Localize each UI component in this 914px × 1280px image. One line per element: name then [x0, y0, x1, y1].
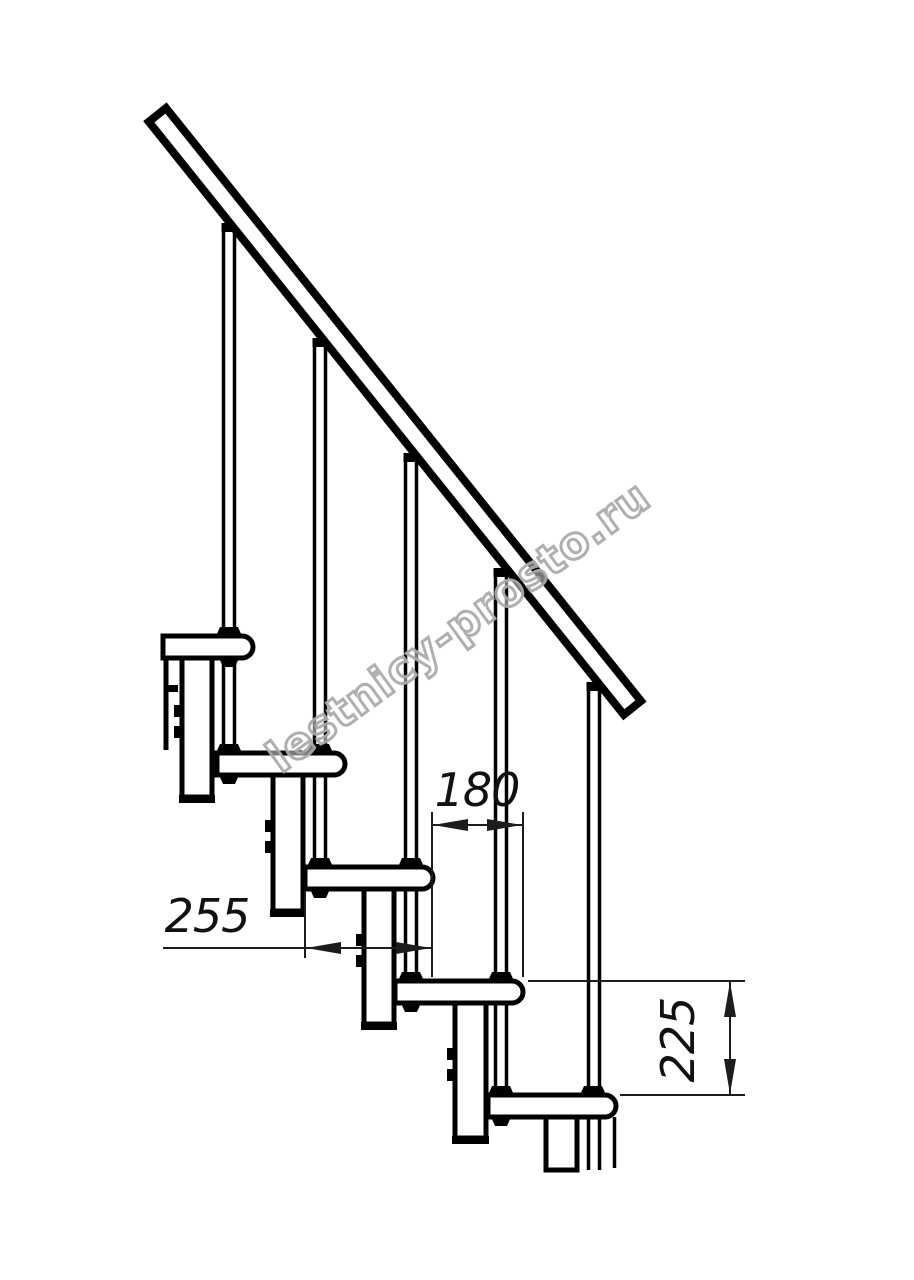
collar-tread5-b4	[488, 1086, 514, 1095]
dim255-arrow-left	[306, 942, 341, 954]
nut-tread5-b4	[491, 1117, 511, 1126]
column-3-bottom-cap	[361, 1022, 397, 1030]
dim255-arrow-right	[396, 942, 431, 954]
column-2-bolt-lower	[265, 841, 273, 853]
column-3-bolt-lower	[356, 955, 364, 967]
column-4-bolt-upper	[447, 1048, 455, 1060]
column-5	[546, 1117, 577, 1170]
tread-1	[163, 636, 253, 658]
column-1-bolt-lower	[174, 726, 182, 738]
dim180-arrow-left	[433, 819, 468, 831]
nut-tread4-b3	[401, 1003, 421, 1012]
column-4	[455, 1003, 486, 1138]
column-2-bolt-upper	[265, 820, 273, 832]
column-3	[364, 889, 394, 1024]
dim255-label: 255	[165, 889, 250, 943]
balusters	[222, 223, 602, 1170]
tread-4	[395, 981, 523, 1003]
dim180-label: 180	[435, 763, 520, 817]
nut-tread3-b2	[310, 889, 330, 898]
dimension-225: 225	[528, 981, 745, 1095]
column-4-bolt-lower	[447, 1069, 455, 1081]
column-1-bottom-cap	[179, 795, 215, 803]
column-2-bottom-cap	[270, 909, 306, 917]
staircase-drawing-page: 180 255 225 lestnicy-prosto.ru	[0, 0, 914, 1280]
column-1-bolt-upper	[174, 705, 182, 717]
collar-tread4-b3	[398, 972, 424, 981]
modular-staircase-side-view: 180 255 225 lestnicy-prosto.ru	[0, 0, 914, 1280]
column-1	[182, 658, 212, 797]
dim225-label: 225	[651, 998, 705, 1083]
column-2	[273, 775, 303, 911]
collar-tread1-b1	[216, 627, 242, 636]
collar-tread5-b5	[580, 1086, 606, 1095]
column-4-bottom-cap	[452, 1136, 489, 1144]
dim180-arrow-right	[487, 819, 522, 831]
column-1-side-tab	[166, 685, 178, 692]
dim225-arrow-down	[724, 1059, 736, 1094]
tread-5	[488, 1095, 616, 1117]
collar-tread3-b3	[398, 858, 424, 867]
column-3-bolt-upper	[356, 934, 364, 946]
dimension-180: 180	[432, 763, 523, 977]
nut-tread2-b1	[219, 775, 239, 784]
collar-tread2-b1	[216, 744, 242, 753]
collar-tread3-b2	[307, 858, 333, 867]
tread-3	[305, 867, 433, 889]
collar-tread4-b4	[488, 972, 514, 981]
dim225-arrow-up	[724, 982, 736, 1017]
